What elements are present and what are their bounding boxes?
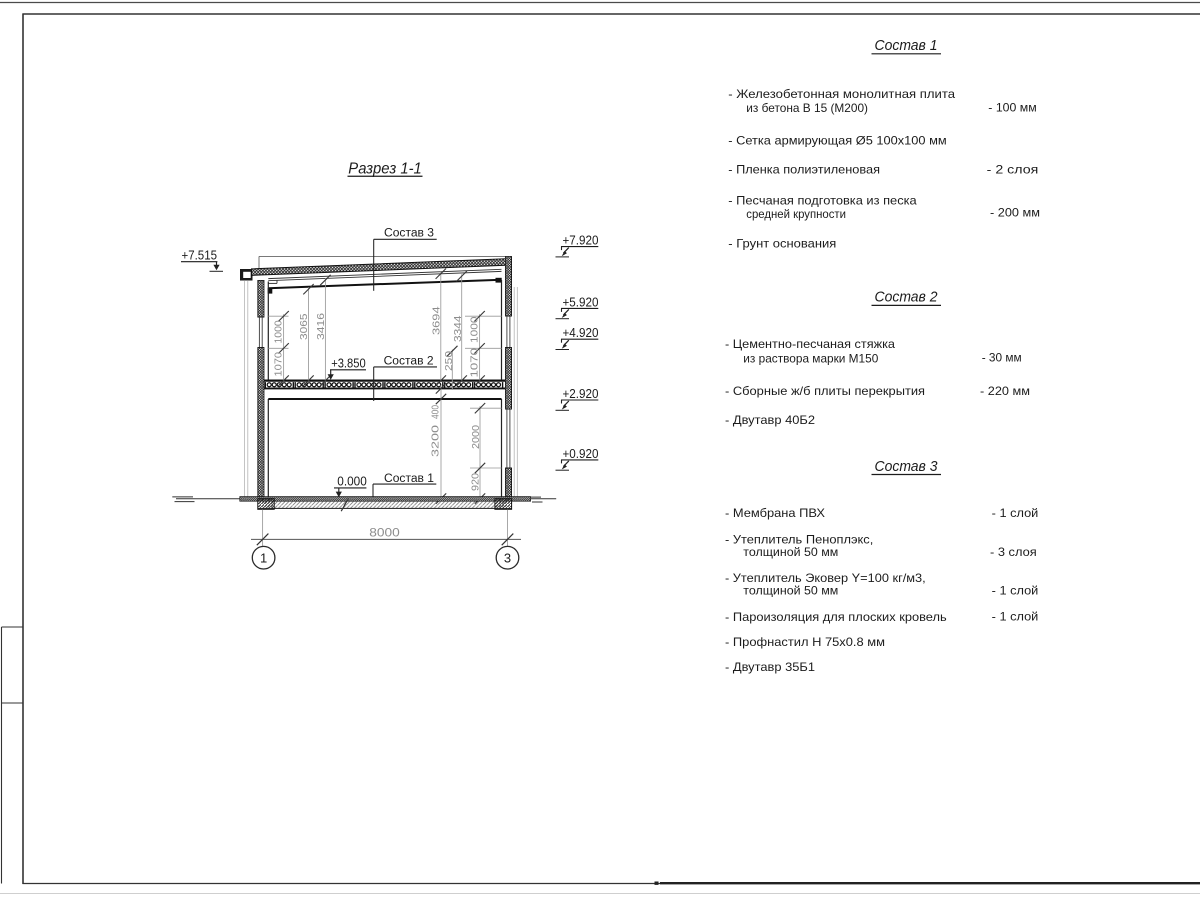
svg-text:3416: 3416 (315, 313, 327, 340)
svg-text:+7.920: +7.920 (563, 234, 599, 248)
svg-text:1070: 1070 (272, 352, 284, 377)
svg-text:250: 250 (443, 351, 455, 371)
svg-text:Состав 2: Состав 2 (875, 290, 938, 306)
svg-text:из раствора марки М150: из раствора марки М150 (743, 352, 878, 366)
svg-text:- 3 слоя: - 3 слоя (990, 545, 1037, 559)
svg-text:+2.920: +2.920 (563, 387, 599, 401)
svg-text:Состав 1: Состав 1 (384, 473, 434, 485)
svg-text:Состав 1: Состав 1 (875, 38, 938, 54)
svg-text:- 200 мм: - 200 мм (990, 206, 1040, 220)
svg-text:Разрез 1-1: Разрез 1-1 (348, 160, 422, 177)
svg-text:8000: 8000 (369, 528, 400, 540)
svg-text:0.000: 0.000 (337, 475, 367, 489)
svg-text:- 1 слой: - 1 слой (992, 506, 1039, 520)
svg-text:2000: 2000 (470, 425, 482, 449)
svg-text:- Железобетонная монолитная п: - Железобетонная монолитная плита (728, 87, 955, 101)
svg-text:1000: 1000 (272, 320, 284, 343)
svg-text:1: 1 (260, 550, 267, 565)
svg-text:- Грунт основания: - Грунт основания (728, 237, 836, 251)
svg-text:- Цементно-песчаная стяжка: - Цементно-песчаная стяжка (725, 337, 895, 351)
svg-text:- 1 слой: - 1 слой (992, 609, 1039, 623)
svg-text:3065: 3065 (298, 313, 310, 340)
svg-text:+7.515: +7.515 (182, 248, 218, 262)
svg-text:средней крупности: средней крупности (746, 207, 846, 221)
svg-text:- Пленка полиэтиленовая: - Пленка полиэтиленовая (728, 163, 880, 177)
svg-text:Состав 3: Состав 3 (384, 228, 434, 240)
svg-text:толщиной 50 мм: толщиной 50 мм (743, 583, 838, 597)
svg-text:из бетона В 15 (М200): из бетона В 15 (М200) (746, 101, 868, 115)
svg-text:3344: 3344 (452, 315, 464, 342)
svg-text:- 2 слоя: - 2 слоя (987, 163, 1039, 177)
svg-text:Состав 3: Состав 3 (875, 459, 938, 475)
svg-text:- 30 мм: - 30 мм (982, 351, 1022, 365)
svg-text:+0.920: +0.920 (563, 447, 599, 461)
svg-text:толщиной 50 мм: толщиной 50 мм (743, 545, 838, 559)
svg-text:- Двутавр 40Б2: - Двутавр 40Б2 (725, 413, 815, 427)
svg-text:- 100 мм: - 100 мм (988, 101, 1036, 115)
svg-text:- 220 мм: - 220 мм (980, 384, 1030, 398)
svg-text:- Сетка армирующая Ø5 100х100: - Сетка армирующая Ø5 100х100 мм (728, 134, 946, 148)
svg-text:400: 400 (430, 405, 442, 419)
svg-text:- Песчаная подготовка из песка: - Песчаная подготовка из песка (728, 193, 917, 207)
svg-text:+5.920: +5.920 (563, 295, 599, 309)
svg-text:- Мембрана ПВХ: - Мембрана ПВХ (725, 506, 825, 520)
svg-text:- Сборные ж/б плиты перекрытия: - Сборные ж/б плиты перекрытия (725, 384, 925, 398)
svg-text:1070: 1070 (469, 348, 481, 378)
svg-text:- Двутавр 35Б1: - Двутавр 35Б1 (725, 660, 815, 674)
svg-text:+4.920: +4.920 (563, 326, 599, 340)
svg-text:3: 3 (504, 550, 511, 565)
svg-text:- Пароизоляция для плоских кро: - Пароизоляция для плоских кровель (725, 610, 947, 624)
svg-text:- 1 слой: - 1 слой (992, 583, 1039, 597)
svg-text:- Профнастил Н 75х0.8 мм: - Профнастил Н 75х0.8 мм (725, 635, 885, 649)
svg-text:3200: 3200 (430, 425, 442, 457)
svg-text:1000: 1000 (469, 316, 481, 343)
svg-text:Состав 2: Состав 2 (384, 356, 434, 368)
svg-text:+3.850: +3.850 (331, 356, 366, 370)
svg-text:3694: 3694 (431, 306, 443, 335)
svg-text:920: 920 (469, 473, 481, 491)
